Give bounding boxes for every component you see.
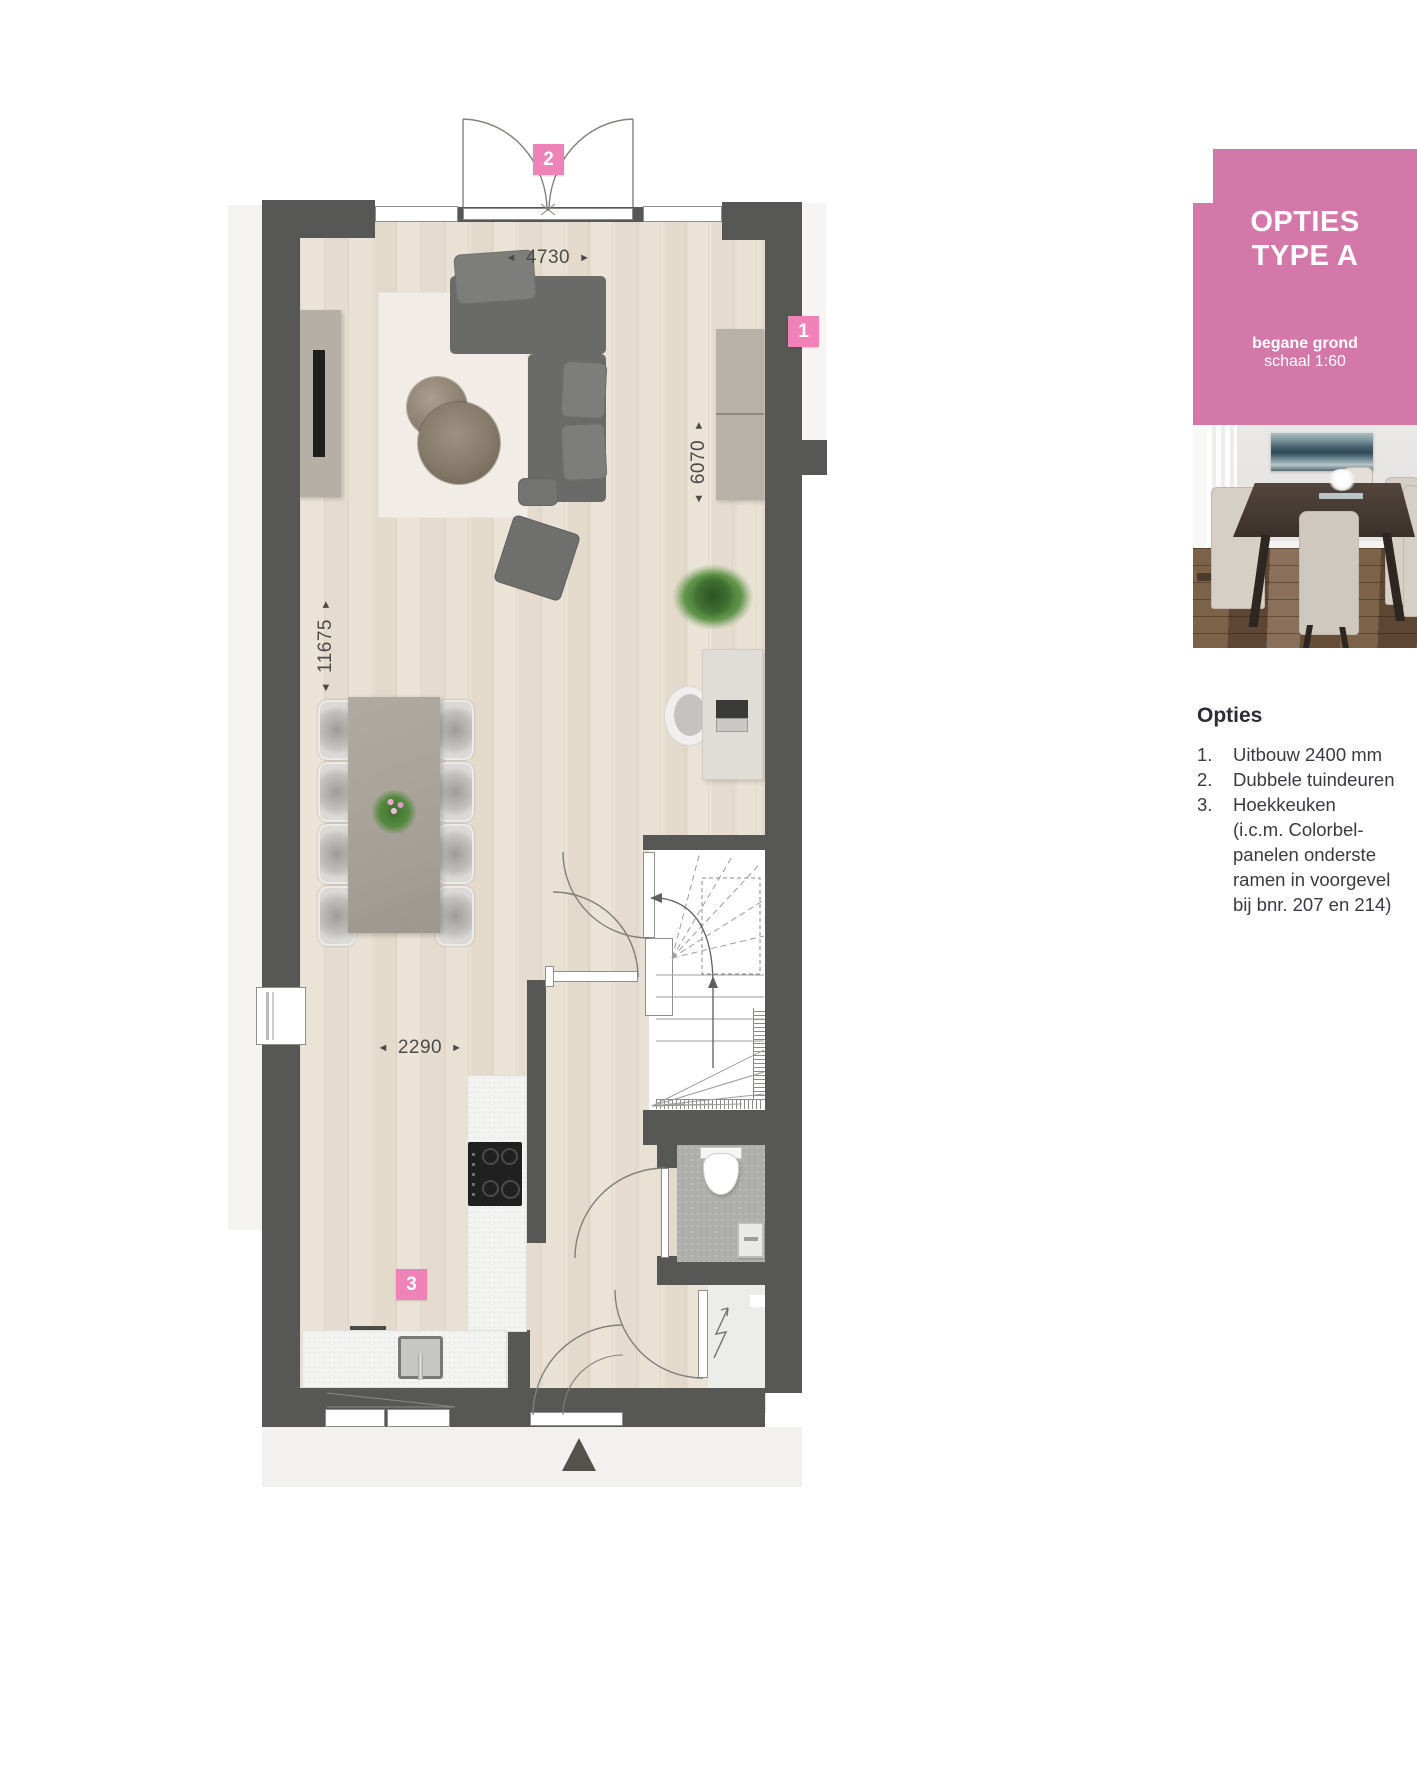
entrance-arrow-icon	[562, 1438, 596, 1471]
panel-floor-label: begane grond	[1193, 335, 1417, 353]
dim-arrow-left: ◄	[694, 493, 705, 504]
option-badge-1: 1	[788, 316, 819, 347]
dimension-left: ◄ 11675 ►	[315, 599, 337, 694]
dimension-top: ◄ 4730 ►	[505, 247, 590, 269]
wc-door-swing	[575, 1168, 665, 1258]
option-number: 2.	[1197, 767, 1233, 792]
option-badge-2: 2	[533, 144, 564, 175]
stair-walkline-arrow-up	[708, 976, 718, 988]
dining-room-photo	[1193, 425, 1417, 648]
photo-artwork	[1271, 433, 1373, 471]
dim-value: 2290	[398, 1037, 442, 1059]
panel-title-line1: OPTIES	[1193, 205, 1417, 239]
entrance-door-swing-inner	[563, 1355, 623, 1415]
option-text-line: panelen onderste	[1233, 842, 1391, 867]
option-number: 1.	[1197, 742, 1233, 767]
options-list: Opties 1. Uitbouw 2400 mm 2. Dubbele tui…	[1197, 704, 1417, 917]
option-text: Hoekkeuken (i.c.m. Colorbel- panelen ond…	[1233, 792, 1391, 917]
option-item-1: 1. Uitbouw 2400 mm	[1197, 742, 1417, 767]
option-text: Dubbele tuindeuren	[1233, 767, 1395, 792]
floorplan-sheet: ◄ 4730 ► ◄ 6070 ► ◄ 11675 ► ◄ 2290 ► 2 1…	[0, 0, 1417, 1772]
option-number: 3.	[1197, 792, 1233, 917]
option-text-line: ramen in voorgevel	[1233, 867, 1391, 892]
option-badge-3: 3	[396, 1269, 427, 1300]
entrance-door-swing	[533, 1325, 623, 1415]
option-text-line: (i.c.m. Colorbel-	[1233, 817, 1391, 842]
title-panel-text: OPTIES TYPE A begane grond schaal 1:60	[1193, 205, 1417, 371]
title-panel-step	[1213, 149, 1417, 209]
dim-arrow-right: ►	[694, 419, 705, 430]
dimension-right: ◄ 6070 ►	[688, 419, 710, 504]
dim-arrow-left: ◄	[377, 1043, 388, 1054]
stair-dashed-rect	[702, 878, 760, 974]
option-text: Uitbouw 2400 mm	[1233, 742, 1382, 767]
stair-treads-lower-fan	[652, 1050, 764, 1106]
dim-arrow-right: ►	[451, 1043, 462, 1054]
dim-arrow-left: ◄	[321, 682, 332, 693]
photo-tray	[1319, 493, 1363, 499]
dim-arrow-right: ►	[579, 253, 590, 264]
panel-scale-label: schaal 1:60	[1193, 353, 1417, 371]
dim-value: 11675	[315, 619, 337, 673]
stair-walkline-arrow-left	[650, 893, 662, 903]
option-item-3: 3. Hoekkeuken (i.c.m. Colorbel- panelen …	[1197, 792, 1417, 917]
panel-title-line2: TYPE A	[1193, 239, 1417, 273]
dim-value: 6070	[688, 440, 710, 484]
window-tilt-symbol	[327, 1393, 455, 1407]
photo-flowers	[1327, 469, 1357, 491]
option-text-line: bij bnr. 207 en 214)	[1233, 892, 1391, 917]
dimension-kitchen: ◄ 2290 ►	[377, 1037, 462, 1059]
photo-chair-front	[1299, 511, 1359, 635]
dim-arrow-right: ►	[321, 599, 332, 610]
stair-treads-upper-fan	[672, 852, 764, 958]
options-heading: Opties	[1197, 704, 1417, 728]
option-item-2: 2. Dubbele tuindeuren	[1197, 767, 1417, 792]
meter-closet-door-swing	[615, 1290, 703, 1378]
dim-arrow-left: ◄	[505, 253, 516, 264]
stair-walkline	[660, 898, 713, 1068]
dim-value: 4730	[526, 247, 570, 269]
option-text-line: Hoekkeuken	[1233, 792, 1391, 817]
lightning-bolt-icon	[714, 1308, 728, 1358]
